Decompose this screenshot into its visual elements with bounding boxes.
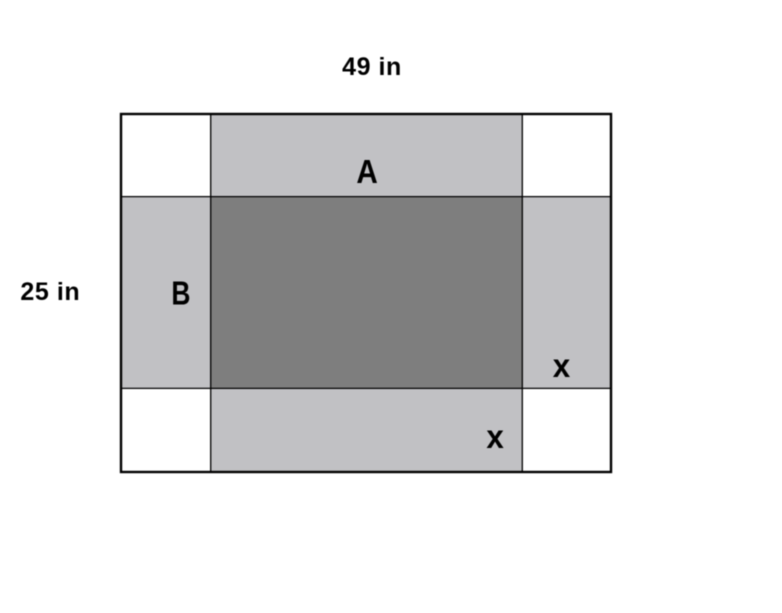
svg-text:x: x [553, 347, 571, 384]
svg-text:A: A [356, 153, 377, 190]
svg-text:25 in: 25 in [20, 278, 80, 306]
svg-text:49 in: 49 in [342, 53, 402, 81]
svg-text:x: x [486, 418, 504, 455]
svg-text:B: B [171, 276, 190, 312]
